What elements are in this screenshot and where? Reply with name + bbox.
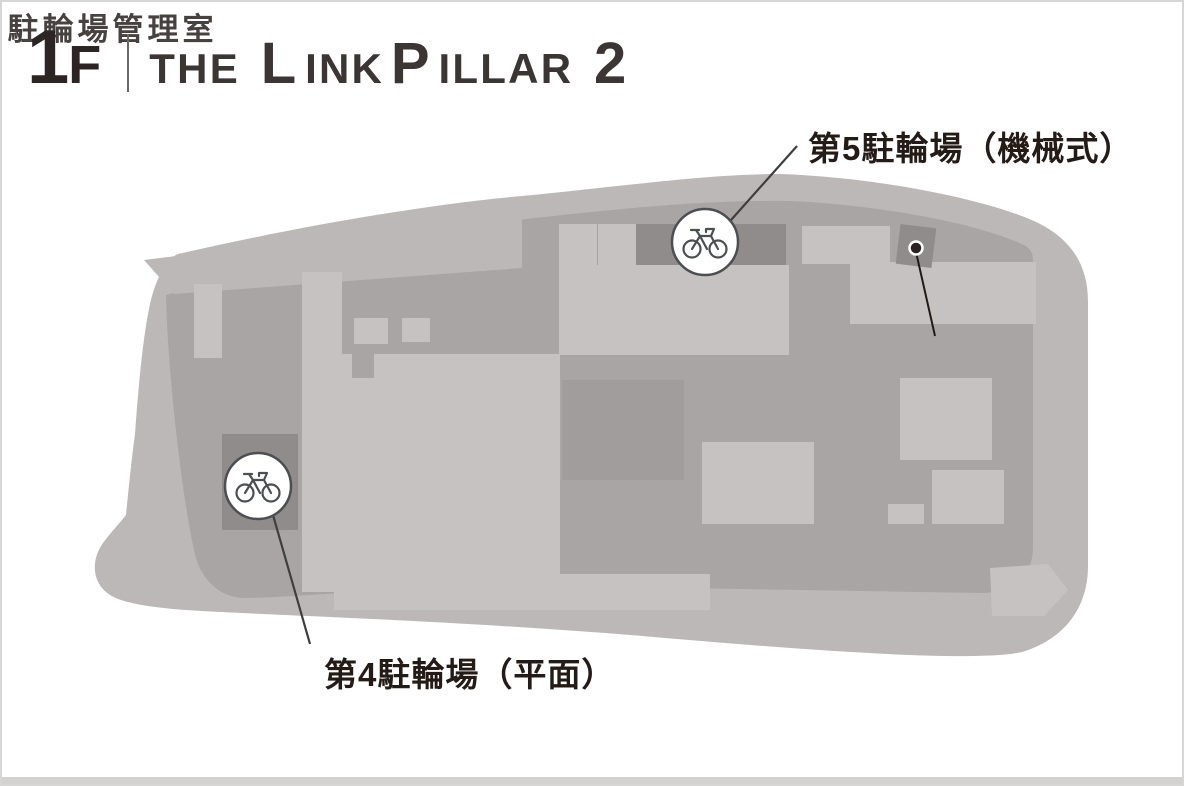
map-block: [334, 574, 710, 610]
map-block: [562, 380, 684, 480]
map-block: [888, 504, 924, 524]
map-block: [354, 318, 388, 344]
map-block: [559, 265, 789, 355]
bicycle-parking5-marker: [672, 209, 738, 275]
bottom-strip: [2, 777, 1182, 784]
map-block: [702, 442, 814, 524]
marker-circle: [225, 453, 291, 519]
label-parking4: 第4駐輪場（平面）: [324, 648, 615, 696]
label-parking5: 第5駐輪場（機械式）: [808, 122, 1133, 170]
map-block: [559, 224, 597, 265]
floor-map-page: 1 F THE L INK P ILLAR 2: [0, 0, 1184, 786]
marker-circle: [672, 209, 738, 275]
map-block: [402, 318, 430, 342]
map-block: [932, 470, 1004, 524]
map-block: [352, 354, 374, 378]
location-dot: [910, 242, 923, 255]
map-block: [802, 226, 890, 264]
map-block: [900, 378, 992, 460]
bicycle-parking4-marker: [225, 453, 291, 519]
map-block: [598, 224, 636, 265]
map-block: [850, 262, 1036, 324]
map-block: [194, 284, 222, 358]
